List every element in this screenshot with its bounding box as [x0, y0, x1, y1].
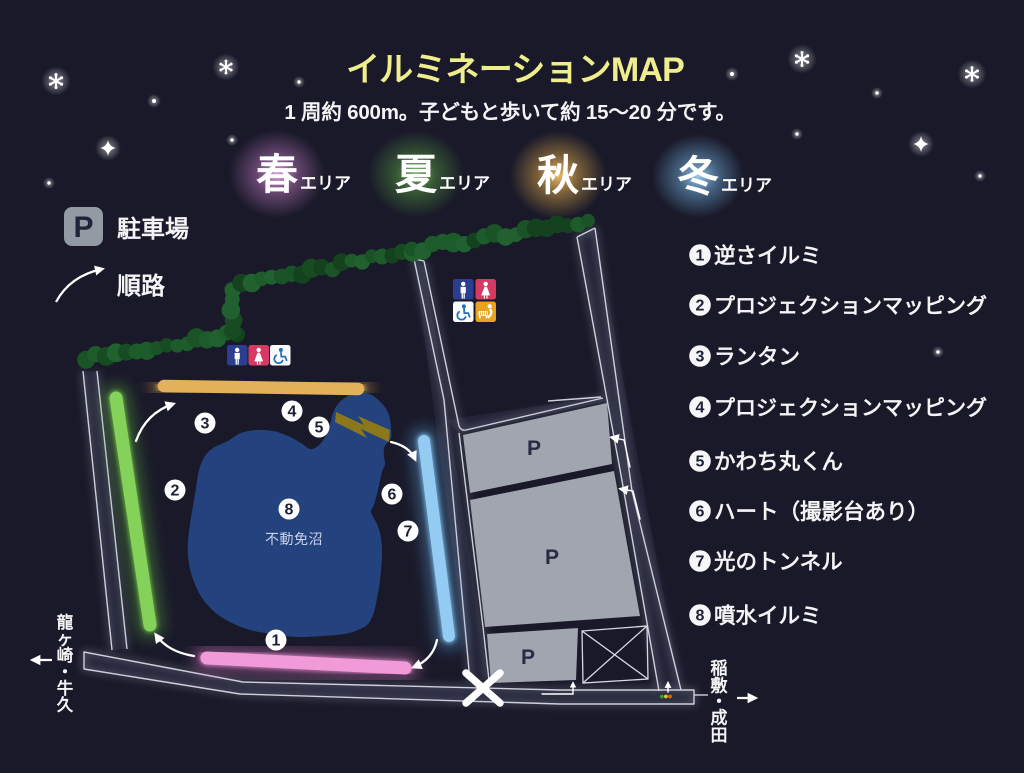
svg-text:秋: 秋 [537, 152, 579, 199]
svg-text:夏: 夏 [395, 151, 438, 198]
svg-text:1: 1 [696, 248, 705, 265]
svg-text:エリア: エリア [439, 174, 490, 193]
svg-text:稲敷・成田: 稲敷・成田 [711, 659, 729, 745]
svg-text:噴水イルミ: 噴水イルミ [714, 603, 822, 628]
svg-text:5: 5 [315, 420, 324, 437]
svg-text:2: 2 [696, 298, 705, 315]
svg-text:P: P [521, 646, 535, 669]
svg-text:P: P [73, 211, 93, 244]
svg-text:冬: 冬 [677, 153, 719, 200]
svg-text:龍ヶ崎・牛久: 龍ヶ崎・牛久 [57, 612, 74, 715]
svg-text:6: 6 [696, 504, 705, 521]
svg-text:2: 2 [171, 483, 180, 500]
svg-text:光のトンネル: 光のトンネル [713, 550, 843, 574]
svg-text:エリア: エリア [300, 174, 351, 193]
svg-text:ハート（撮影台あり）: ハート（撮影台あり） [714, 499, 929, 524]
svg-text:エリア: エリア [721, 176, 772, 195]
svg-text:プロジェクションマッピング: プロジェクションマッピング [714, 396, 987, 420]
svg-text:5: 5 [696, 454, 705, 471]
svg-text:かわち丸くん: かわち丸くん [714, 450, 843, 474]
svg-text:P: P [527, 437, 541, 460]
svg-text:6: 6 [388, 487, 397, 504]
svg-text:逆さイルミ: 逆さイルミ [714, 243, 822, 268]
svg-text:1: 1 [272, 633, 281, 650]
svg-text:4: 4 [696, 400, 705, 417]
svg-text:7: 7 [696, 554, 705, 571]
svg-text:不動免沼: 不動免沼 [265, 531, 323, 547]
svg-text:8: 8 [285, 502, 294, 519]
svg-text:3: 3 [201, 416, 210, 433]
svg-text:8: 8 [696, 608, 705, 625]
svg-text:駐車場: 駐車場 [117, 215, 189, 243]
svg-text:1 周約 600m。子どもと歩いて約 15〜20 分です。: 1 周約 600m。子どもと歩いて約 15〜20 分です。 [284, 100, 735, 124]
svg-text:ランタン: ランタン [714, 345, 800, 369]
svg-text:3: 3 [696, 349, 705, 366]
svg-text:4: 4 [288, 404, 297, 421]
svg-text:7: 7 [404, 524, 413, 541]
svg-text:順路: 順路 [117, 272, 166, 300]
svg-text:P: P [545, 546, 559, 569]
svg-text:プロジェクションマッピング: プロジェクションマッピング [714, 294, 987, 318]
svg-text:イルミネーションMAP: イルミネーションMAP [346, 51, 684, 89]
svg-text:エリア: エリア [581, 175, 632, 194]
svg-text:春: 春 [256, 151, 298, 198]
